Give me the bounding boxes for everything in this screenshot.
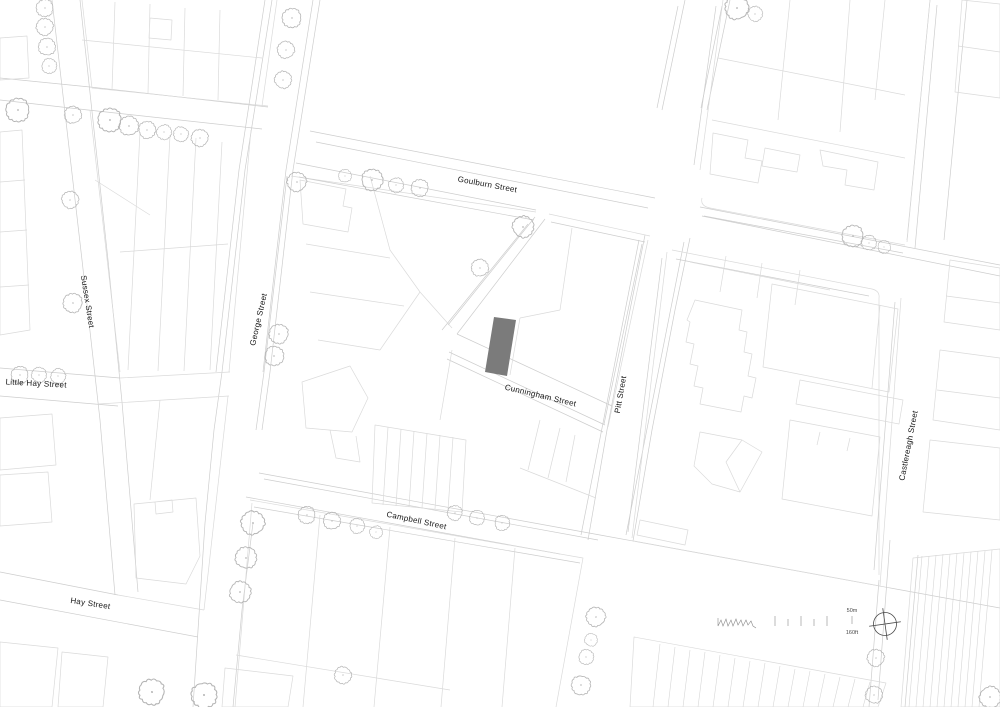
street-label-little-hay: Little Hay Street [5,377,67,389]
street-label-pitt: Pitt Street [613,375,629,414]
tree-icon [283,168,310,195]
tree-icon [236,506,269,539]
tree-icon [577,647,596,666]
street-label-hay: Hay Street [70,596,112,611]
tree-icon [36,0,53,17]
street-label-cunningham: Cunningham Street [504,383,578,409]
tree-icon [154,122,174,142]
tree-icon [6,98,29,122]
tree-icon [861,235,877,251]
site-plan-map: Goulburn Street George Street Sussex Str… [0,0,1000,707]
tree-icon [96,106,123,134]
tree-icon [226,578,255,607]
tree-icon [331,663,355,687]
street-label-george: George Street [248,292,269,347]
north-indicator-icon [867,606,903,642]
scale-metric-label: 50m [847,608,858,614]
tree-icon [38,37,57,55]
tree-icon [171,124,191,144]
site-plan-page: Goulburn Street George Street Sussex Str… [0,0,1000,707]
tree-icon [495,515,510,530]
street-labels-layer: Goulburn Street George Street Sussex Str… [5,175,920,612]
tree-icon [863,683,886,706]
tree-icon [271,68,295,92]
tree-icon [348,517,366,535]
tree-icon [444,503,464,523]
tree-icon [188,126,212,150]
tree-icon [59,188,82,211]
tree-icon [135,675,168,707]
tree-icon [282,8,301,28]
tree-icon [232,544,260,571]
tree-icon [570,675,593,697]
tree-icon [338,169,351,182]
tree-icon [368,524,385,541]
tree-icon [841,224,864,247]
tree-icon [189,681,219,707]
tree-icon [864,646,888,670]
street-label-goulburn: Goulburn Street [457,175,518,195]
tree-icon [40,56,59,75]
street-label-castlereagh: Castlereagh Street [897,409,920,481]
scale-imperial-label: 160ft [846,630,859,636]
scale-bar-major-ticks [775,616,852,626]
tree-icon [387,176,406,195]
tree-icon [409,177,430,198]
tree-icon [582,631,600,648]
tree-icon [274,38,297,61]
tree-icon [60,290,84,315]
tree-icon [582,603,609,630]
scale-bar-fine-ticks [718,618,756,628]
tree-icon [33,15,57,39]
scale-bar: 50m 160ft [718,608,859,636]
tree-icon [62,104,84,126]
